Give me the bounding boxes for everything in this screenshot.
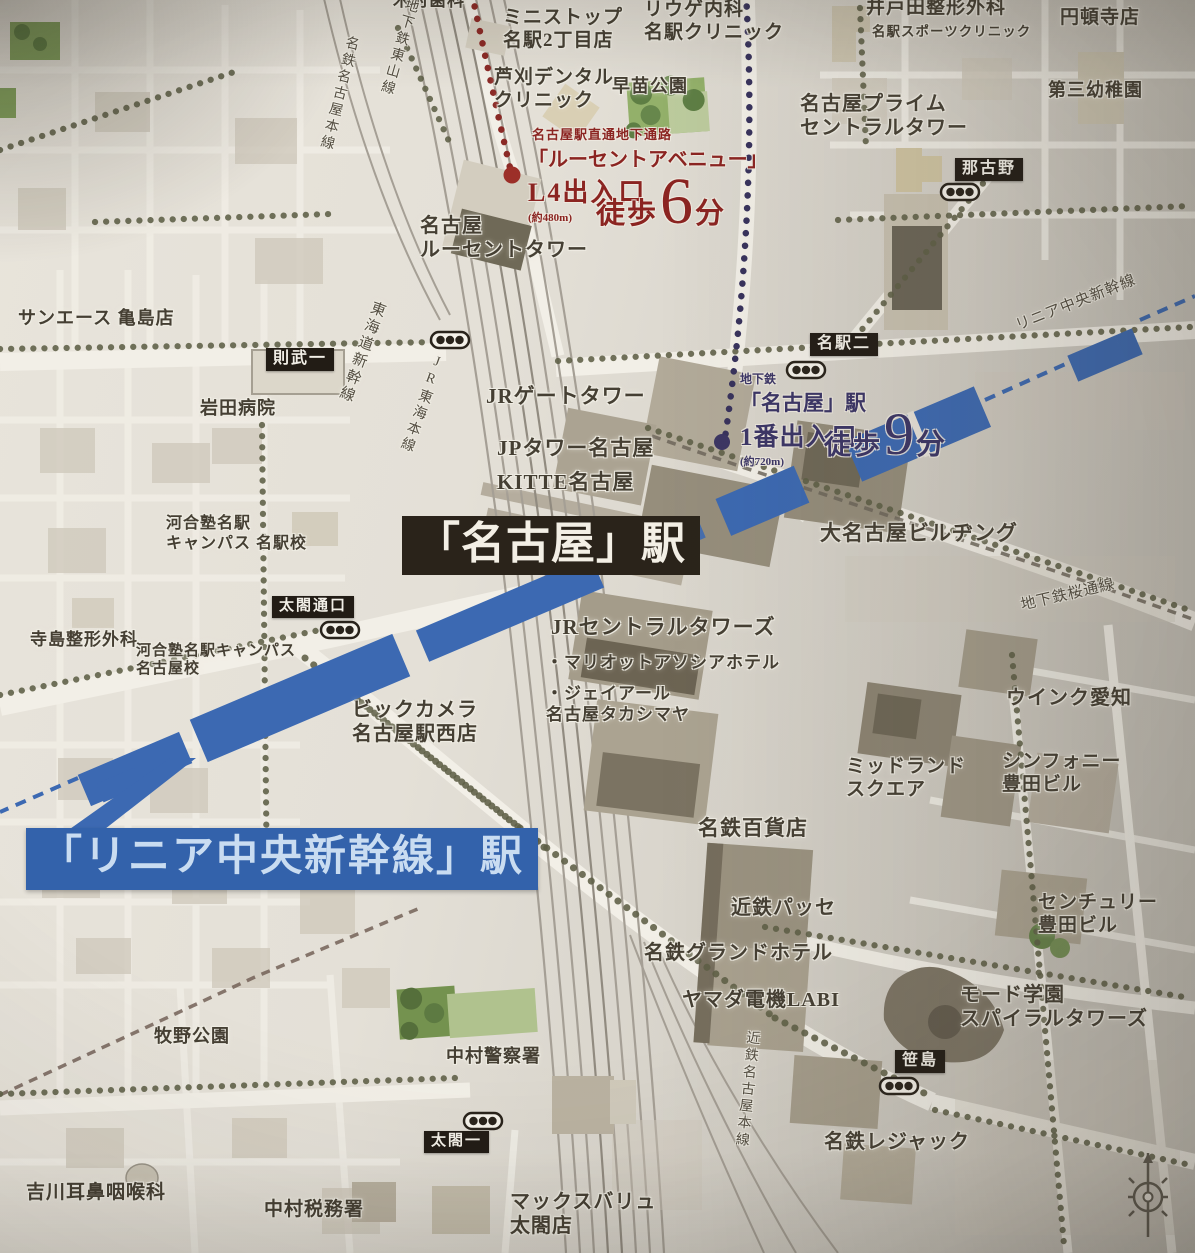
place-label-terashima-seikei: 寺島整形外科 bbox=[30, 630, 138, 651]
place-label-sanae-park: 早苗公園 bbox=[612, 76, 688, 98]
rail-line-label-tokaido-shinkansen: 東海道新幹線 bbox=[334, 298, 388, 406]
place-label-endoji-store: 円頓寺店 bbox=[1060, 6, 1140, 29]
place-label-meitetsu-grand: 名鉄グランドホテル bbox=[644, 941, 833, 965]
nagoya-station-label: 「名古屋」駅 bbox=[402, 516, 700, 575]
place-label-dai-nagoya-bldg: 大名古屋ビルヂング bbox=[820, 521, 1018, 547]
walk-route-time: 徒歩 6 分 bbox=[596, 164, 724, 240]
place-label-mode-gakuen: モード学園 スパイラルタワーズ bbox=[960, 983, 1148, 1032]
walk-route-note: 名古屋駅直通地下通路 bbox=[532, 124, 828, 143]
area-badge-taiko-1: 太閤一 bbox=[424, 1131, 489, 1153]
rail-line-label-subway-higashiyama: 地下鉄東山線 bbox=[376, 0, 421, 98]
place-label-nagoya-prime: 名古屋プライム セントラルタワー bbox=[800, 92, 968, 141]
map-labels-layer: 「名古屋」駅 「リニア中央新幹線」駅 名古屋駅直通地下通路 「ルーセントアベニュ… bbox=[0, 0, 1195, 1253]
rail-line-label-linear-chuo-shinkansen: リニア中央新幹線 bbox=[1013, 271, 1139, 335]
rail-line-label-meitetsu-nagoya-honsen: 名鉄名古屋本線 bbox=[316, 34, 361, 154]
walk-prefix: 徒歩 bbox=[824, 423, 882, 462]
area-badge-meieki-2: 名駅二 bbox=[810, 333, 878, 356]
walk-route-lucent-info: 名古屋駅直通地下通路 「ルーセントアベニュー」 L4出入口 (約480m) 徒歩… bbox=[528, 124, 828, 225]
walk-route-subway-info: 地下鉄 「名古屋」駅 1番出入口 (約720m) 徒歩 9 分 bbox=[740, 370, 1000, 469]
rail-line-label-kintetsu-nagoya-honsen: 近鉄名古屋本線 bbox=[732, 1029, 761, 1149]
place-label-jp-tower: JPタワー名古屋 bbox=[497, 436, 654, 462]
place-label-nakamura-police: 中村警察署 bbox=[446, 1046, 541, 1068]
place-label-century-toyota: センチュリー 豊田ビル bbox=[1038, 891, 1158, 937]
place-label-kawai-nagoya: 河合塾名駅キャンパス 名古屋校 bbox=[136, 642, 296, 679]
place-label-marriott-associa: ・マリオットアソシアホテル bbox=[546, 653, 780, 674]
rail-line-label-jr-tokai-honsen: JR東海本線 bbox=[396, 352, 448, 456]
walk-minutes: 9 bbox=[884, 400, 914, 469]
place-label-midland-square: ミッドランド スクエア bbox=[846, 755, 966, 801]
rail-line-label-subway-sakura-dori: 地下鉄桜通線 bbox=[1019, 575, 1117, 614]
place-label-riuge-clinic: リウゲ内科 名駅クリニック bbox=[644, 0, 784, 44]
place-label-ministop: ミニストップ 名駅2丁目店 bbox=[503, 6, 623, 52]
place-label-itoda-sub: 名駅スポーツクリニック bbox=[872, 24, 1031, 40]
place-label-meitetsu-dept: 名鉄百貨店 bbox=[698, 816, 808, 842]
walk-minutes: 6 bbox=[660, 164, 693, 240]
place-label-yoshikawa-ent: 吉川耳鼻咽喉科 bbox=[26, 1181, 166, 1204]
place-label-symphony-toyota: シンフォニー 豊田ビル bbox=[1002, 750, 1121, 796]
area-badge-sasashima: 笹島 bbox=[895, 1050, 945, 1073]
place-label-bic-camera: ビックカメラ 名古屋駅西店 bbox=[352, 698, 478, 747]
walk-prefix: 徒歩 bbox=[596, 190, 658, 232]
place-label-makino-park: 牧野公園 bbox=[154, 1026, 230, 1048]
place-label-itoda-seikei: 井戸田整形外科 bbox=[866, 0, 1006, 19]
place-label-sun-ace: サンエース 亀島店 bbox=[18, 308, 175, 330]
place-label-kitte-nagoya: KITTE名古屋 bbox=[497, 470, 635, 496]
walk-unit: 分 bbox=[695, 190, 724, 232]
place-label-kawai-meieki: 河合塾名駅 キャンパス 名駅校 bbox=[166, 514, 307, 553]
place-label-jr-gate-tower: JRゲートタワー bbox=[486, 384, 646, 410]
place-label-ashikari-dental: 芦刈デンタル クリニック bbox=[494, 66, 614, 112]
area-badge-nagono: 那古野 bbox=[955, 158, 1023, 181]
walk-route-time: 徒歩 9 分 bbox=[824, 400, 945, 469]
place-label-maxvalu-taiko: マックスバリュ 太閤店 bbox=[510, 1190, 656, 1239]
area-badge-taiko-guchi: 太閤通口 bbox=[272, 596, 354, 618]
place-label-kintetsu-passe: 近鉄パッセ bbox=[731, 896, 836, 920]
place-label-yamada-labi: ヤマダ電機LABI bbox=[682, 988, 840, 1012]
linear-station-banner: 「リニア中央新幹線」駅 bbox=[26, 828, 538, 890]
walk-route-line: 地下鉄 bbox=[740, 370, 1000, 387]
place-label-wink-aichi: ウインク愛知 bbox=[1006, 686, 1132, 710]
place-label-jr-central-towers: JRセントラルタワーズ bbox=[551, 615, 776, 641]
place-label-meitetsu-lejac: 名鉄レジャック bbox=[824, 1130, 970, 1154]
place-label-jr-takashimaya: ・ジェイアール 名古屋タカシマヤ bbox=[546, 684, 690, 725]
nagoya-station-area-map: 「名古屋」駅 「リニア中央新幹線」駅 名古屋駅直通地下通路 「ルーセントアベニュ… bbox=[0, 0, 1195, 1253]
area-badge-noritake-1: 則武一 bbox=[266, 348, 334, 371]
walk-unit: 分 bbox=[916, 421, 945, 463]
place-label-nakamura-tax: 中村税務署 bbox=[264, 1198, 364, 1221]
place-label-daisan-kindergarten: 第三幼稚園 bbox=[1048, 80, 1143, 102]
place-label-iwata-hospital: 岩田病院 bbox=[200, 398, 276, 420]
place-label-lucent-tower: 名古屋 ルーセントタワー bbox=[420, 214, 588, 263]
